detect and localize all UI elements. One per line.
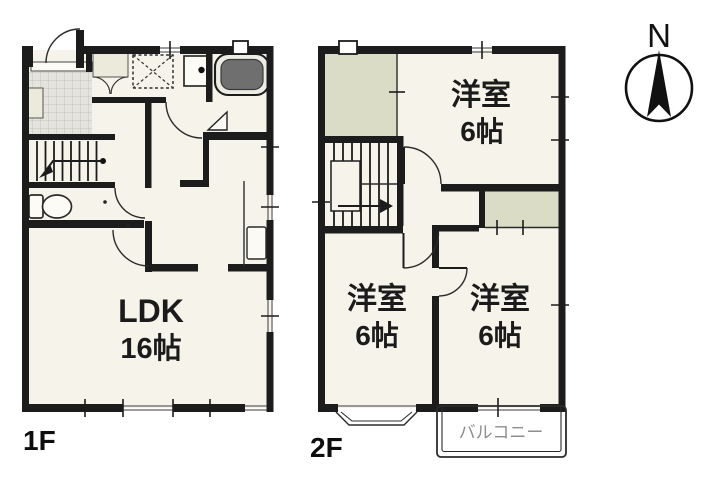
toilet-icon (29, 195, 72, 218)
floorplan-1f: LDK 16帖 1F (22, 29, 279, 456)
room-label-ldk-name: LDK (118, 293, 184, 329)
north-arrow-icon (647, 50, 671, 117)
bedroom3-label-size: 6帖 (478, 320, 522, 351)
closet-top-left (325, 53, 398, 136)
bay-window (336, 412, 417, 425)
kitchen-sink-icon (247, 227, 266, 259)
bedroom2-label-name: 洋室 (347, 282, 407, 316)
floorplan-2f: バルコニー 洋室 6帖 洋室 6帖 洋室 6帖 2F (310, 41, 569, 463)
bathtub-icon (215, 54, 269, 95)
floorplan-svg: LDK 16帖 1F (0, 0, 720, 487)
compass: N (626, 17, 692, 121)
floor-label-1f: 1F (23, 425, 56, 456)
bedroom2-label-size: 6帖 (355, 320, 399, 351)
bath-window-notch (233, 41, 248, 54)
room-label-ldk-size: 16帖 (120, 332, 181, 365)
floorplan-canvas: LDK 16帖 1F (0, 0, 720, 487)
bedroom1-label-name: 洋室 (451, 78, 511, 112)
door-dot (103, 200, 107, 204)
closet-window-notch (339, 41, 357, 54)
bedroom3-label-name: 洋室 (470, 282, 530, 316)
compass-n-label: N (647, 17, 671, 54)
bedroom1-label-size: 6帖 (460, 116, 504, 147)
closet-mid-right (485, 191, 559, 228)
floor-label-2f: 2F (310, 432, 343, 463)
door-dot (126, 224, 130, 228)
vanity-sink-icon (184, 56, 208, 86)
washbasin-counter (93, 52, 128, 77)
balcony-label: バルコニー (459, 423, 544, 442)
balcony: バルコニー (437, 406, 566, 457)
